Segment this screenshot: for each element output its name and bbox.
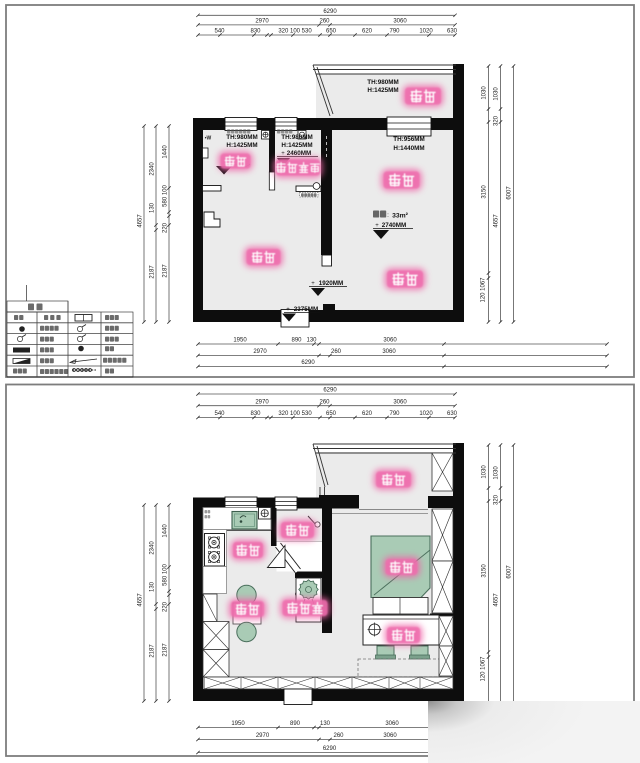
svg-text:320: 320 (494, 494, 500, 505)
svg-text:1950: 1950 (233, 338, 247, 344)
svg-text:120 1067: 120 1067 (481, 277, 487, 303)
svg-text:130: 130 (150, 202, 156, 213)
svg-text:TH:980MM: TH:980MM (226, 134, 258, 141)
svg-text:6290: 6290 (323, 746, 337, 752)
svg-text:320 100 530: 320 100 530 (278, 411, 312, 417)
svg-text:1440: 1440 (163, 524, 169, 538)
svg-text:3150: 3150 (482, 564, 488, 578)
svg-text:890: 890 (290, 721, 301, 727)
svg-text:4657: 4657 (494, 593, 500, 607)
svg-text:260: 260 (333, 733, 344, 739)
svg-text:2375MM: 2375MM (294, 306, 319, 313)
svg-text:2970: 2970 (255, 399, 269, 405)
svg-text:130: 130 (150, 581, 156, 592)
svg-text:3060: 3060 (393, 399, 407, 405)
svg-text:260: 260 (319, 399, 330, 405)
svg-text:2970: 2970 (253, 349, 267, 355)
svg-text:2187: 2187 (163, 643, 169, 657)
svg-text:H:1425MM: H:1425MM (226, 142, 257, 149)
svg-text:790: 790 (389, 411, 400, 417)
svg-text:890: 890 (291, 338, 302, 344)
svg-text:6007: 6007 (507, 565, 513, 579)
svg-text:1030: 1030 (494, 466, 500, 480)
svg-text:33m²: 33m² (392, 213, 409, 220)
svg-text:120 1067: 120 1067 (481, 656, 487, 682)
svg-text:580 100: 580 100 (163, 564, 169, 586)
svg-text:1920MM: 1920MM (319, 280, 344, 287)
svg-text:4657: 4657 (138, 593, 144, 607)
svg-text:3060: 3060 (385, 721, 399, 727)
svg-text:790: 790 (389, 29, 400, 35)
svg-text:830: 830 (250, 29, 261, 35)
svg-text:1020: 1020 (419, 411, 433, 417)
svg-text:2970: 2970 (255, 19, 269, 25)
svg-text:2460MM: 2460MM (287, 150, 312, 157)
svg-text:H:1440MM: H:1440MM (393, 145, 424, 152)
svg-text::: : (387, 212, 389, 219)
svg-text:3060: 3060 (383, 338, 397, 344)
svg-text:1030: 1030 (482, 465, 488, 479)
svg-text:1030: 1030 (482, 86, 488, 100)
svg-text:6007: 6007 (507, 186, 513, 200)
svg-text:6290: 6290 (323, 388, 337, 394)
svg-text:3150: 3150 (482, 185, 488, 199)
svg-text:TH:980MM: TH:980MM (367, 79, 399, 86)
svg-text:3060: 3060 (383, 733, 397, 739)
svg-text:2740MM: 2740MM (382, 222, 407, 229)
svg-text:6290: 6290 (301, 360, 315, 366)
svg-text:3060: 3060 (393, 19, 407, 25)
svg-text:260: 260 (331, 349, 342, 355)
svg-text:220: 220 (163, 222, 169, 233)
svg-text:130: 130 (306, 338, 317, 344)
svg-text:1950: 1950 (231, 721, 245, 727)
svg-text:650: 650 (326, 411, 337, 417)
svg-text:320 100 530: 320 100 530 (278, 29, 312, 35)
svg-text:260: 260 (319, 19, 330, 25)
svg-text:540: 540 (214, 411, 225, 417)
svg-text:1440: 1440 (163, 145, 169, 159)
svg-text:130: 130 (320, 721, 331, 727)
svg-text:+: + (281, 151, 285, 157)
svg-text:1020: 1020 (419, 29, 433, 35)
svg-text:2187: 2187 (163, 264, 169, 278)
svg-text:1030: 1030 (494, 87, 500, 101)
svg-text:2340: 2340 (150, 162, 156, 176)
svg-text:830: 830 (250, 411, 261, 417)
svg-text:630: 630 (447, 411, 458, 417)
svg-text:630: 630 (447, 29, 458, 35)
svg-text:2970: 2970 (256, 733, 270, 739)
svg-text:220: 220 (163, 601, 169, 612)
svg-text:3060: 3060 (382, 349, 396, 355)
svg-text:4657: 4657 (138, 214, 144, 228)
svg-text:+: + (286, 307, 290, 313)
svg-text:TH:956MM: TH:956MM (393, 136, 425, 143)
svg-text:+: + (311, 281, 315, 287)
svg-text:•W: •W (205, 136, 212, 142)
svg-text:2187: 2187 (150, 265, 156, 279)
svg-text:4657: 4657 (494, 214, 500, 228)
svg-text:6290: 6290 (323, 9, 337, 15)
svg-text:+: + (375, 223, 379, 229)
svg-text:320: 320 (494, 115, 500, 126)
svg-text:H:1425MM: H:1425MM (281, 142, 312, 149)
svg-text:TH:980MM: TH:980MM (281, 134, 313, 141)
svg-text:2187: 2187 (150, 644, 156, 658)
svg-text:580 100: 580 100 (163, 185, 169, 207)
svg-text:2340: 2340 (150, 541, 156, 555)
svg-text:620: 620 (362, 411, 373, 417)
svg-text:540: 540 (214, 29, 225, 35)
svg-text:650: 650 (326, 29, 337, 35)
svg-text:620: 620 (362, 29, 373, 35)
svg-text:H:1425MM: H:1425MM (367, 87, 398, 94)
